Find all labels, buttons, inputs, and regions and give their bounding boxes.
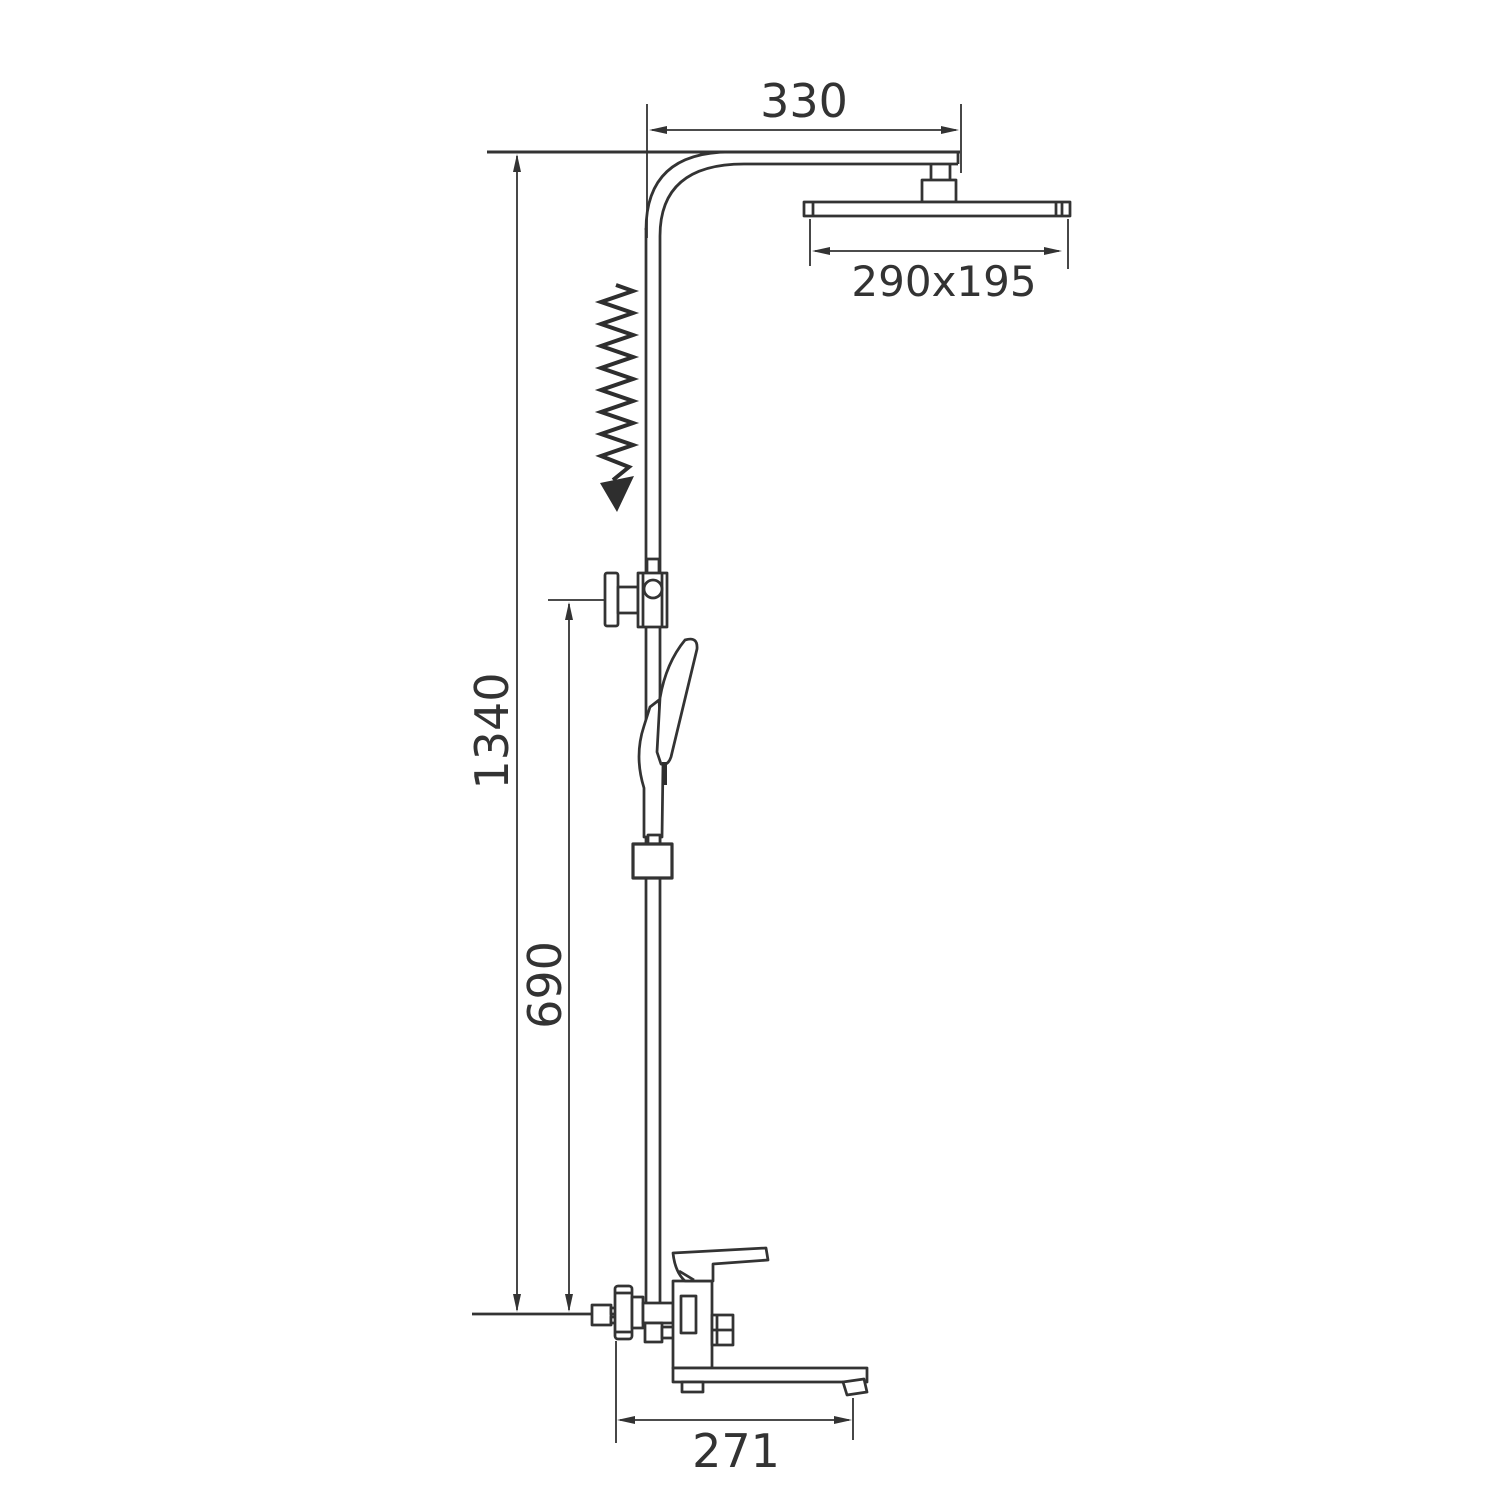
arrow-left-icon	[617, 1416, 635, 1424]
spout-tip	[843, 1379, 867, 1395]
arm-inner-curve	[660, 164, 958, 236]
arrow-up-icon	[565, 602, 573, 620]
zigzag-line	[601, 285, 633, 480]
dimension-1340: 1340	[465, 154, 521, 1312]
tub-spout	[673, 1368, 867, 1382]
dimension-690: 690	[518, 600, 605, 1312]
dim-330-label: 330	[760, 74, 848, 128]
mixer-cover-plate	[681, 1296, 696, 1333]
arrow-right-icon	[941, 126, 959, 134]
wall-supply-elbow	[592, 1305, 611, 1325]
shower-head	[804, 164, 1070, 216]
dimension-290x195: 290x195	[810, 219, 1068, 306]
arm-outer-curve	[646, 152, 730, 230]
arrow-right-icon	[1044, 247, 1062, 255]
inlet-pipe	[643, 1303, 673, 1323]
hand-shower-head	[657, 639, 697, 764]
down-arrowhead-icon	[600, 476, 634, 512]
shower-arm	[646, 152, 958, 236]
shower-drawing-canvas: 330 290x195 1340 690 271	[0, 0, 1500, 1500]
arrow-left-icon	[812, 247, 830, 255]
mixer-foot	[682, 1382, 703, 1392]
dimension-271: 271	[616, 1341, 853, 1478]
rail-slider	[605, 559, 667, 627]
head-swivel-block	[922, 180, 956, 202]
arrow-right-icon	[834, 1416, 852, 1424]
mixer-assembly	[592, 1248, 867, 1395]
slide-bar-bracket	[633, 844, 672, 878]
diverter-knob	[645, 1323, 662, 1342]
dim-271-label: 271	[692, 1424, 780, 1478]
connection-nut	[632, 1297, 643, 1328]
slider-knob	[605, 573, 618, 626]
technical-drawing-page: 330 290x195 1340 690 271	[0, 0, 1500, 1500]
height-adjust-arrow	[600, 285, 634, 512]
arrow-down-icon	[565, 1294, 573, 1312]
dim-690-label: 690	[518, 941, 572, 1029]
hand-shower-clip	[662, 762, 667, 785]
head-plate	[804, 202, 1070, 216]
dim-290x195-label: 290x195	[851, 257, 1036, 306]
slider-knob-stem	[618, 587, 638, 613]
hand-shower	[639, 639, 697, 845]
arrow-up-icon	[513, 154, 521, 172]
slider-pivot	[644, 580, 662, 598]
arrow-left-icon	[649, 126, 667, 134]
arrow-down-icon	[513, 1294, 521, 1312]
dim-1340-label: 1340	[465, 672, 519, 789]
reference-lines	[472, 152, 960, 1314]
